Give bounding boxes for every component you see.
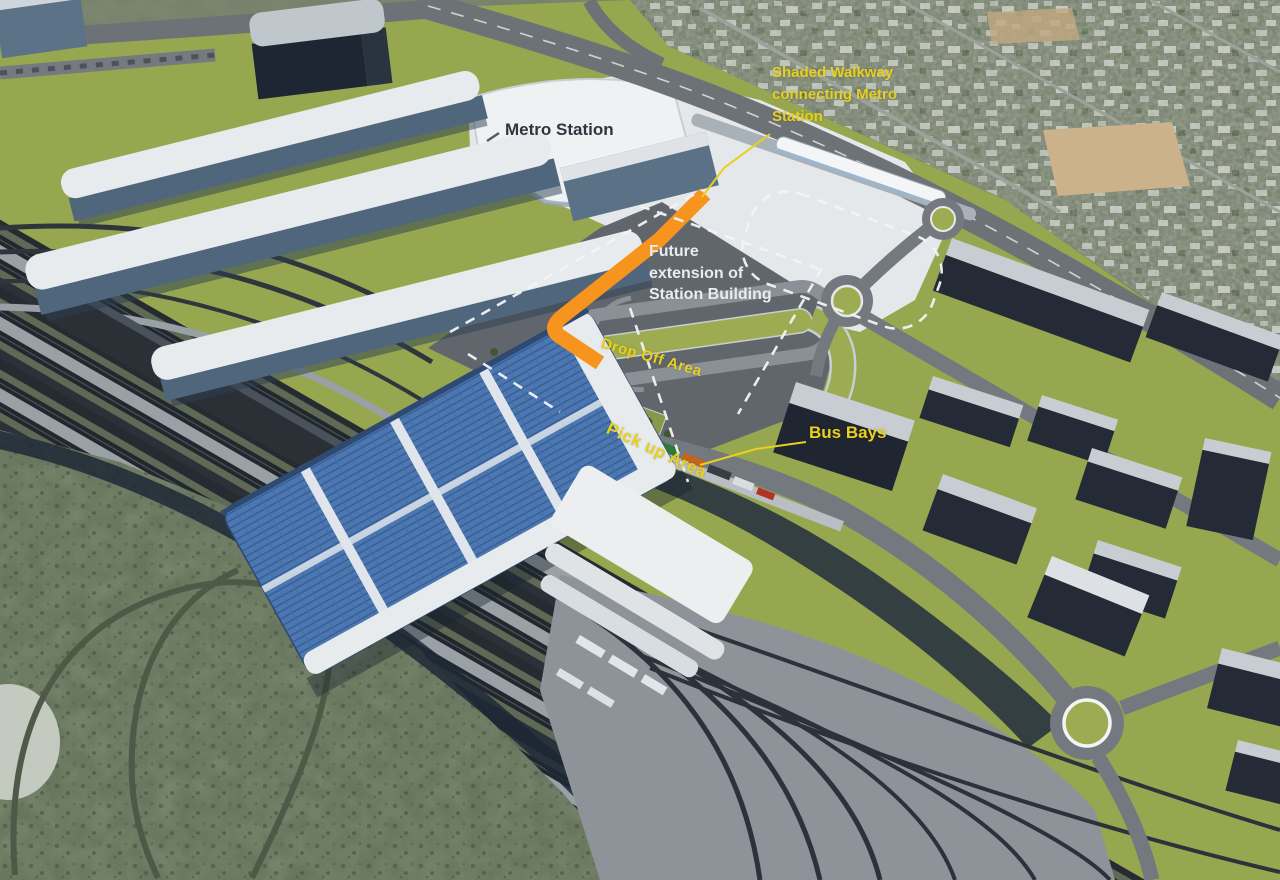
shaded-walkway-label-line1: Shaded Walkway <box>772 62 922 84</box>
station-masterplan-rendering: Metro Station Shaded Walkway connecting … <box>0 0 1280 880</box>
future-extension-label-line2: extension of <box>649 263 772 285</box>
shaded-walkway-label-line2: connecting Metro <box>772 84 922 106</box>
metro-station-label: Metro Station <box>505 119 614 142</box>
future-extension-label-line3: Station Building <box>649 284 772 306</box>
future-extension-label: Future extension of Station Building <box>649 241 772 306</box>
roundabout-center <box>821 275 873 327</box>
roundabout-south <box>1050 686 1124 760</box>
dirt-patch <box>1043 122 1190 196</box>
shaded-walkway-label: Shaded Walkway connecting Metro Station <box>772 62 922 127</box>
dirt-patch <box>987 8 1080 44</box>
roundabout-north <box>922 198 964 240</box>
bus-bays-label: Bus Bays <box>809 422 886 445</box>
shaded-walkway-label-line3: Station <box>772 106 922 128</box>
hangar-building <box>248 0 392 99</box>
future-extension-label-line1: Future <box>649 241 772 263</box>
